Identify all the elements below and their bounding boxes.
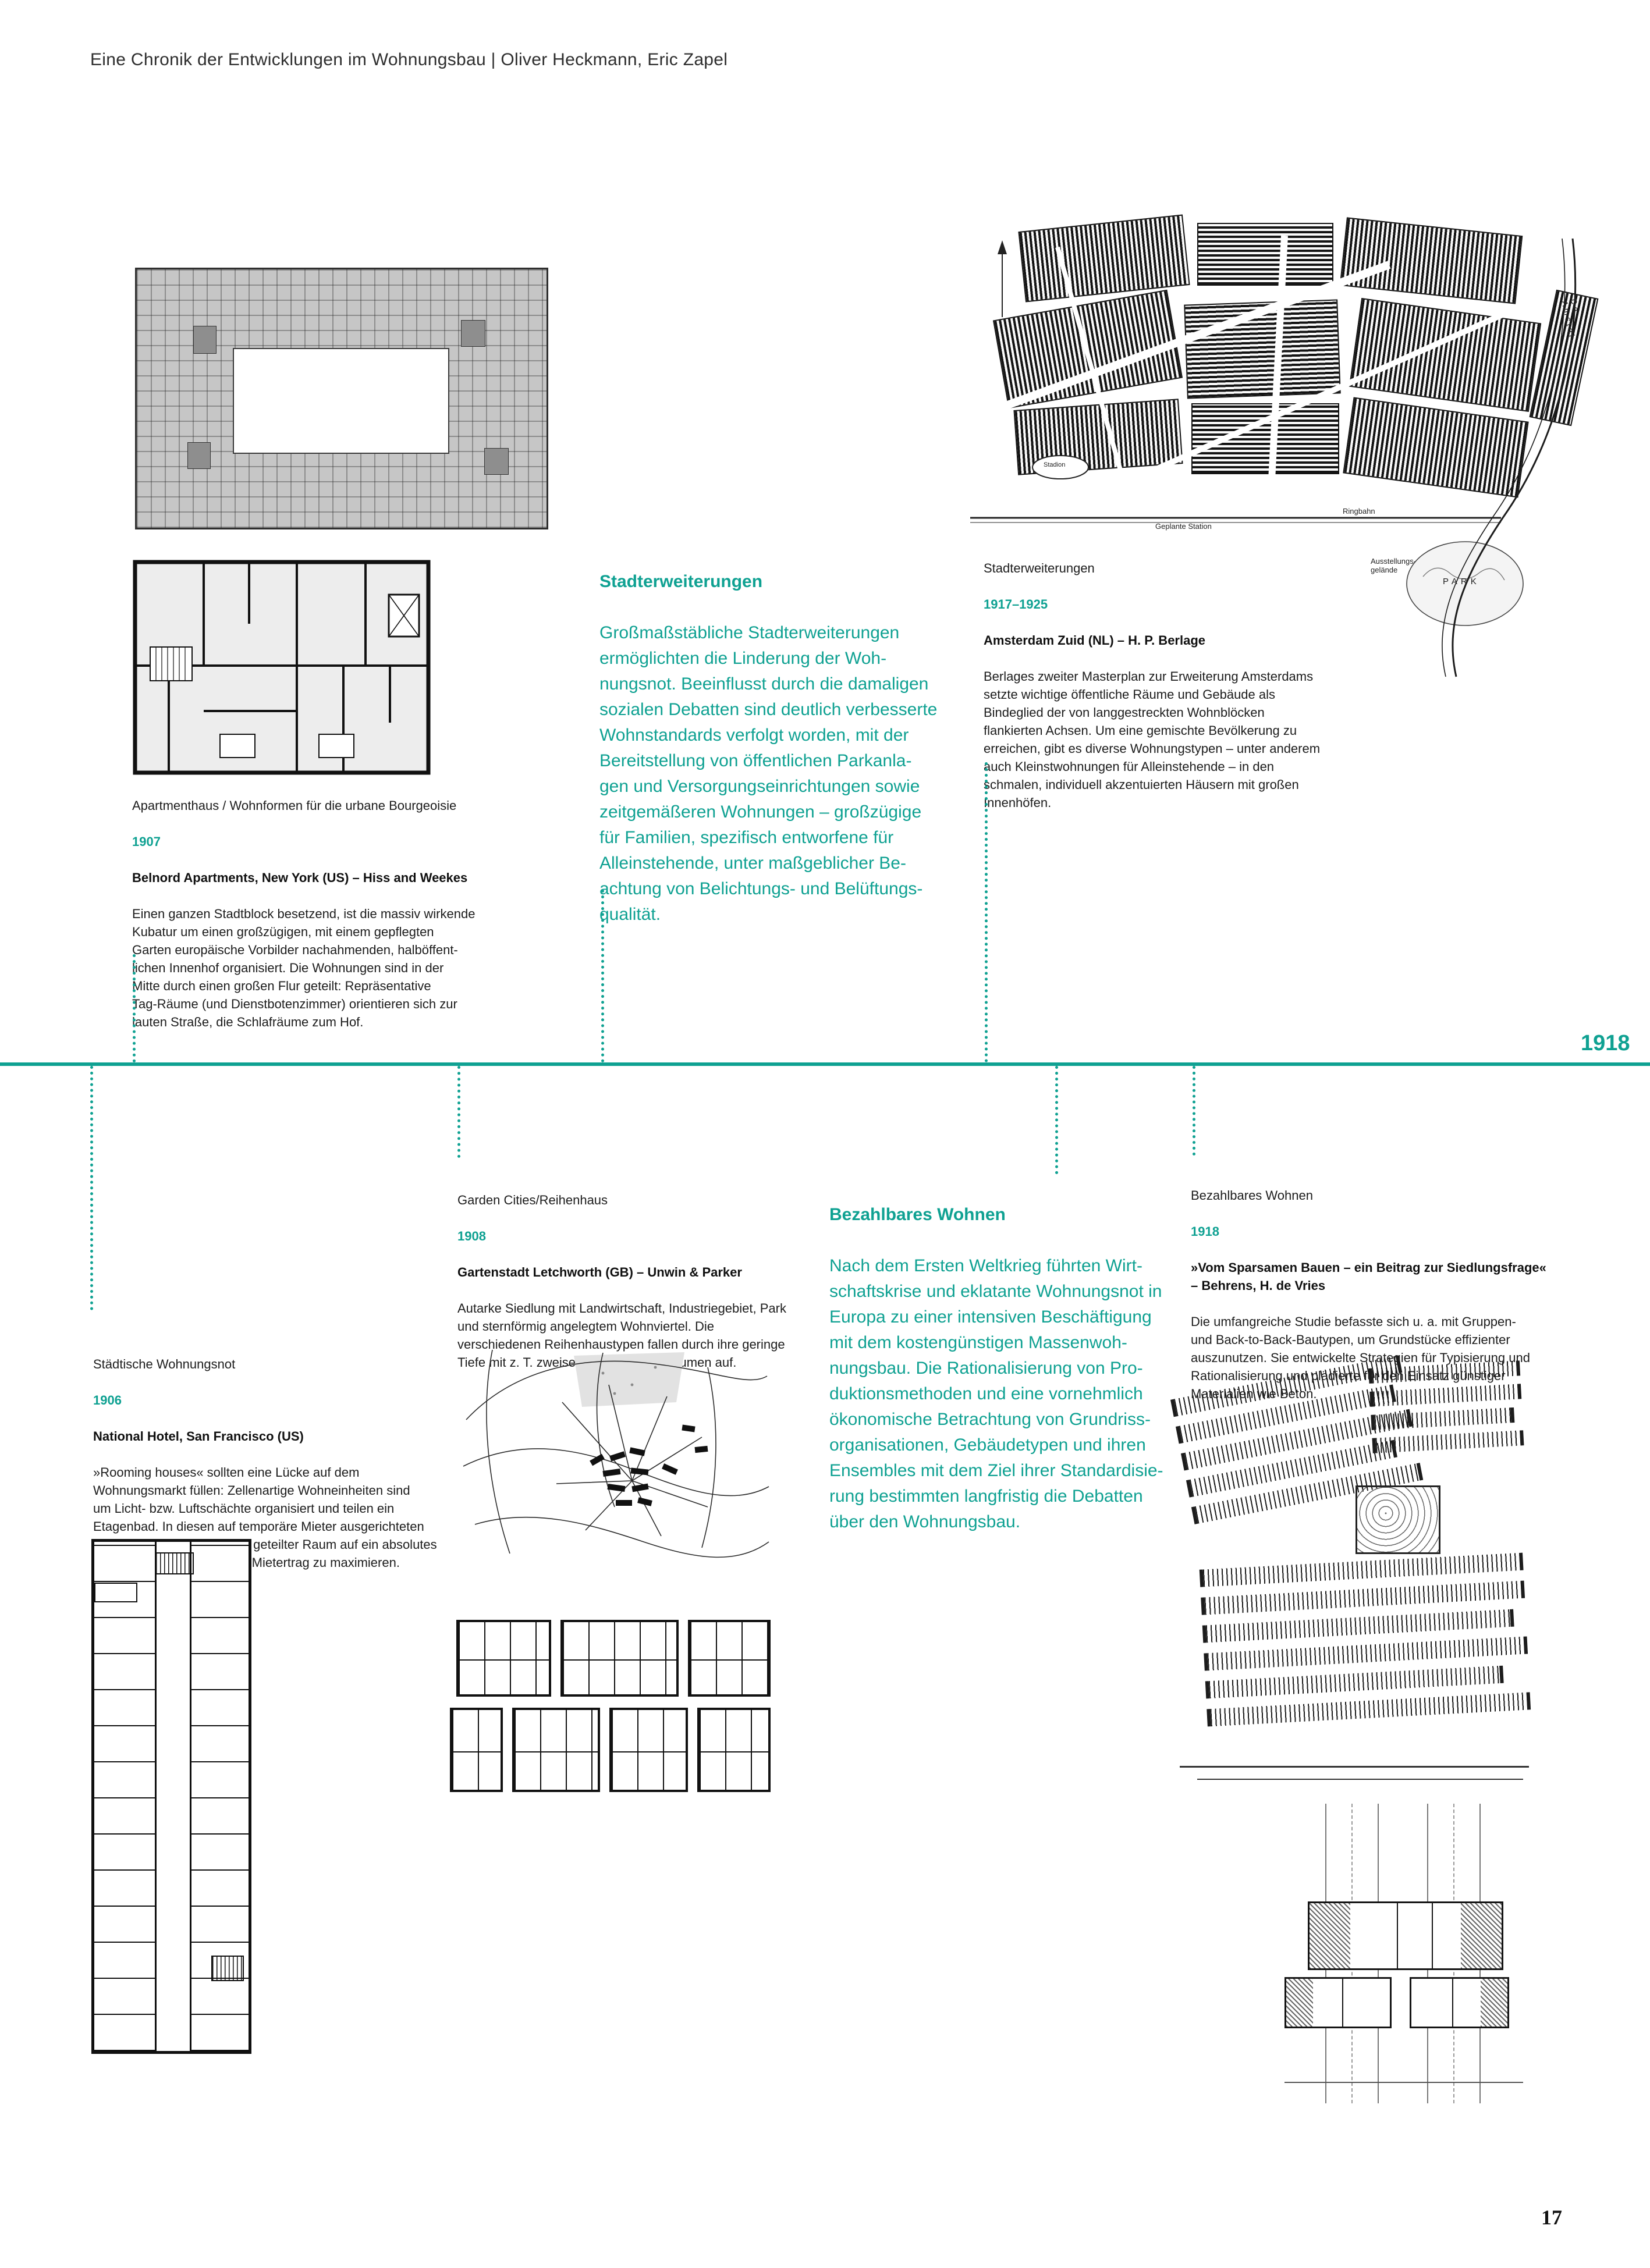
page-header: Eine Chronik der Entwicklungen im Wohnun… xyxy=(90,50,728,70)
intro-heading: Bezahlbares Wohnen xyxy=(829,1205,1006,1224)
rowhouse-plan-group xyxy=(560,1620,679,1697)
caption-year: 1906 xyxy=(93,1391,489,1409)
intro-heading: Stadterweiterungen xyxy=(599,572,762,591)
caption-years: 1917–1925 xyxy=(984,595,1362,613)
plan-cluster xyxy=(1410,1977,1509,2028)
caption-category: Städtische Wohnungsnot xyxy=(93,1355,489,1373)
inner-courtyard xyxy=(233,348,449,454)
rowhouse-plan-group xyxy=(688,1620,771,1697)
rowhouse-plans-strip-2 xyxy=(450,1708,771,1792)
stadterweiterungen-intro: Stadterweiterungen Großmaßstäbliche Stad… xyxy=(599,543,1001,927)
belnord-caption: Apartmenthaus / Wohnformen für die urban… xyxy=(132,778,516,1049)
caption-title: Gartenstadt Letchworth (GB) – Unwin & Pa… xyxy=(457,1263,830,1281)
stair xyxy=(211,1956,244,1981)
connector-amsterdam xyxy=(985,762,988,1062)
plan-cluster xyxy=(1284,1977,1392,2028)
plan-cluster xyxy=(1308,1901,1503,1970)
timeline-year-1918: 1918 xyxy=(1581,1031,1630,1056)
rowhouse-plan-group xyxy=(512,1708,600,1792)
rowhouse-plan-group xyxy=(609,1708,689,1792)
caption-title: Belnord Apartments, New York (US) – Hiss… xyxy=(132,869,516,887)
belnord-floor-plan-image xyxy=(133,560,431,775)
caption-category: Bezahlbares Wohnen xyxy=(1191,1186,1587,1204)
rowhouse-plan-group xyxy=(456,1620,551,1697)
siedlung-plan-image xyxy=(1180,1364,1529,1783)
caption-title: Amsterdam Zuid (NL) – H. P. Berlage xyxy=(984,631,1362,649)
intro-body: Nach dem Ersten Weltkrieg führten Wirt- … xyxy=(829,1256,1163,1531)
connector-stadterweiterungen-intro xyxy=(601,890,604,1062)
connector-sparsames-bauen xyxy=(1193,1066,1195,1156)
book-page: Eine Chronik der Entwicklungen im Wohnun… xyxy=(0,0,1650,2268)
intro-body: Großmaßstäbliche Stadterweiterungen ermö… xyxy=(599,623,937,924)
map-label-ringbahn: Ringbahn xyxy=(1343,507,1375,516)
compass-north-icon xyxy=(998,240,1007,254)
bezahlbares-intro: Bezahlbares Wohnen Nach dem Ersten Weltk… xyxy=(829,1176,1231,1535)
page-number: 17 xyxy=(1541,2205,1562,2230)
caption-year: 1908 xyxy=(457,1227,830,1245)
amsterdam-caption: Stadterweiterungen 1917–1925 Amsterdam Z… xyxy=(984,541,1362,830)
connector-national-hotel xyxy=(90,1066,93,1310)
caption-year: 1907 xyxy=(132,833,516,851)
map-label-geplante-station: Geplante Station xyxy=(1155,522,1212,531)
rowhouse-plan-group xyxy=(697,1708,771,1792)
caption-title: National Hotel, San Francisco (US) xyxy=(93,1427,489,1445)
floor-plan-drawing xyxy=(133,560,431,775)
town-plan-drawing xyxy=(457,1332,772,1587)
rowhouse-plan-group xyxy=(450,1708,503,1792)
connector-letchworth xyxy=(457,1066,460,1158)
corridor xyxy=(155,1542,191,2051)
stair xyxy=(155,1552,194,1574)
caption-body: Berlages zweiter Masterplan zur Erweiter… xyxy=(984,667,1362,812)
national-hotel-plan-image xyxy=(91,1539,251,2054)
letchworth-map-image xyxy=(457,1332,772,1587)
map-label-stadion: Stadion xyxy=(1044,461,1065,468)
caption-title: »Vom Sparsamen Bauen – ein Beitrag zur S… xyxy=(1191,1259,1587,1295)
connector-bezahlbares-intro xyxy=(1055,1066,1058,1174)
caption-body: Einen ganzen Stadtblock besetzend, ist d… xyxy=(132,905,516,1031)
timeline-rule xyxy=(0,1062,1650,1066)
light-well xyxy=(94,1583,137,1602)
back-to-back-plan-image xyxy=(1284,1804,1523,2103)
map-label-ausstellungsgelaende: Ausstellungs- gelände xyxy=(1371,557,1416,574)
connector-belnord xyxy=(133,954,136,1062)
caption-category: Garden Cities/Reihenhaus xyxy=(457,1191,830,1209)
garden-square xyxy=(1356,1485,1440,1554)
caption-category: Apartmenthaus / Wohnformen für die urban… xyxy=(132,797,516,815)
map-label-park: PARK xyxy=(1443,577,1480,586)
caption-category: Stadterweiterungen xyxy=(984,559,1362,577)
rowhouse-plans-strip-1 xyxy=(456,1620,771,1697)
caption-year: 1918 xyxy=(1191,1222,1587,1240)
belnord-block-plan-image xyxy=(135,268,548,529)
